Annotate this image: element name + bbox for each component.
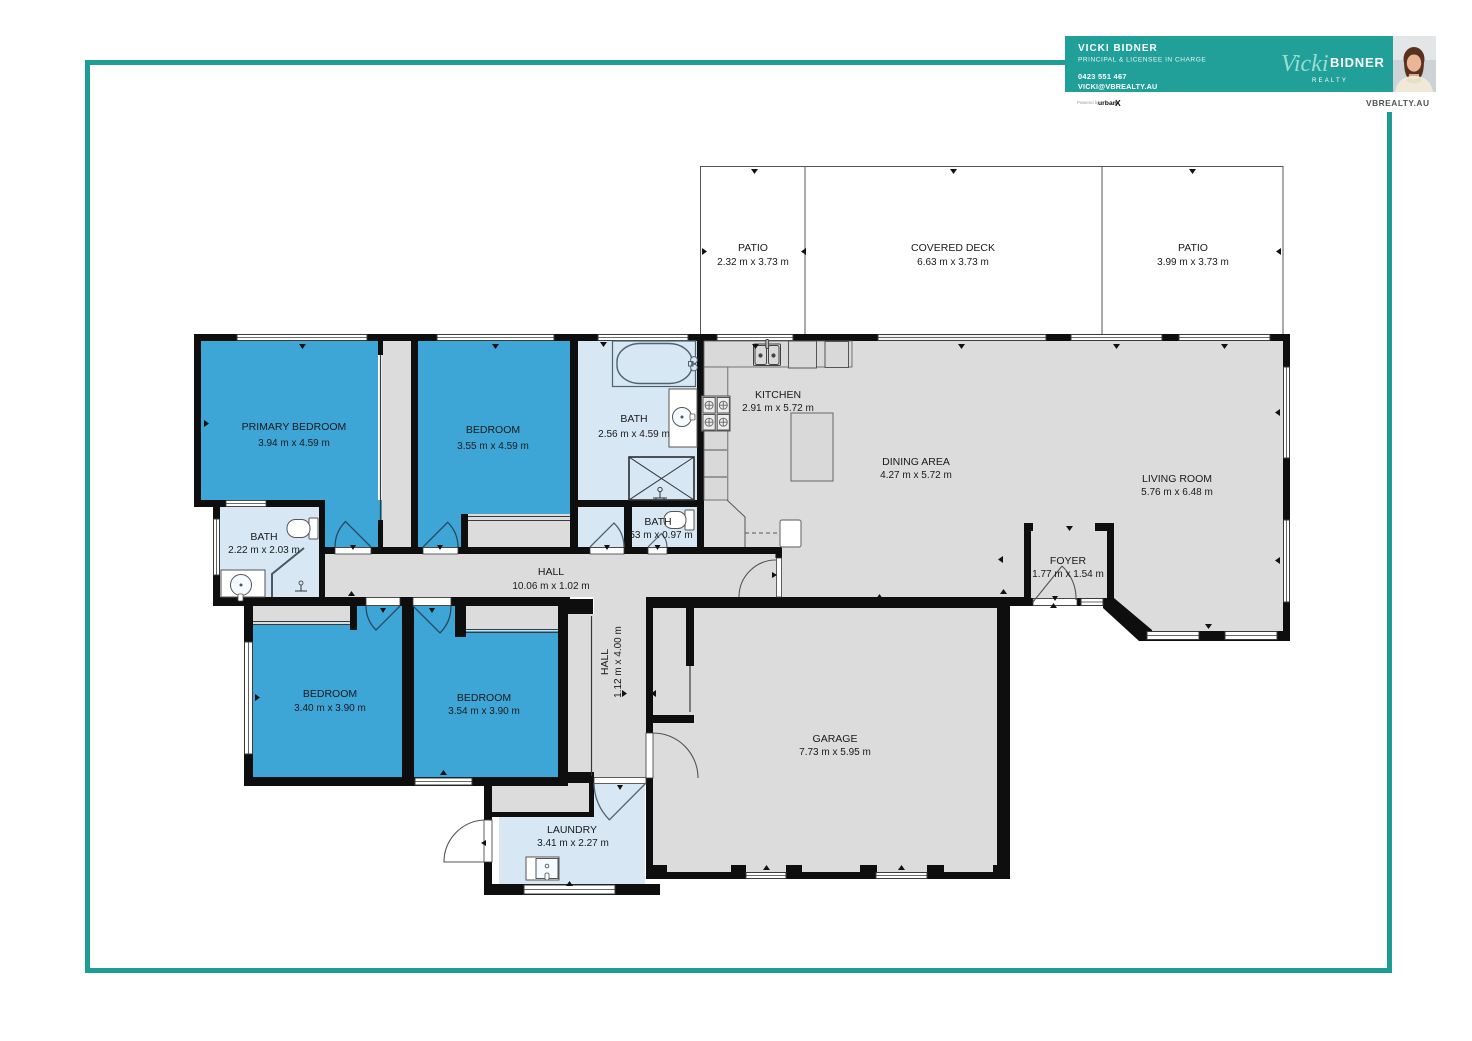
svg-text:PATIO: PATIO <box>738 242 768 254</box>
svg-text:2.56 m x 4.59 m: 2.56 m x 4.59 m <box>598 429 670 440</box>
svg-text:VBREALTY.AU: VBREALTY.AU <box>1366 98 1430 108</box>
svg-text:BATH: BATH <box>620 413 647 425</box>
svg-text:1.12 m x 4.00 m: 1.12 m x 4.00 m <box>613 626 624 698</box>
svg-text:Powered by: Powered by <box>1077 100 1100 105</box>
svg-text:REALTY: REALTY <box>1312 78 1348 84</box>
svg-text:4.27 m x 5.72 m: 4.27 m x 5.72 m <box>880 470 952 481</box>
svg-text:X: X <box>1115 98 1121 108</box>
svg-text:1.77 m x 1.54 m: 1.77 m x 1.54 m <box>1032 569 1104 580</box>
svg-text:PATIO: PATIO <box>1178 242 1208 254</box>
svg-text:Vicki: Vicki <box>1281 51 1329 77</box>
svg-text:3.41 m x 2.27 m: 3.41 m x 2.27 m <box>537 838 609 849</box>
svg-text:HALL: HALL <box>599 649 611 675</box>
svg-text:6.63 m x 3.73 m: 6.63 m x 3.73 m <box>917 257 989 268</box>
svg-text:3.94 m x 4.59 m: 3.94 m x 4.59 m <box>258 438 330 449</box>
svg-text:GARAGE: GARAGE <box>813 733 858 745</box>
svg-text:BEDROOM: BEDROOM <box>457 692 511 704</box>
svg-text:3.40 m x 3.90 m: 3.40 m x 3.90 m <box>294 703 366 714</box>
svg-text:VICKI@VBREALTY.AU: VICKI@VBREALTY.AU <box>1078 82 1157 91</box>
svg-text:PRIMARY BEDROOM: PRIMARY BEDROOM <box>242 421 347 433</box>
svg-text:3.99 m x 3.73 m: 3.99 m x 3.73 m <box>1157 257 1229 268</box>
svg-text:BEDROOM: BEDROOM <box>303 688 357 700</box>
svg-text:0423 551 467: 0423 551 467 <box>1078 72 1127 81</box>
svg-text:3.55 m x 4.59 m: 3.55 m x 4.59 m <box>457 441 529 452</box>
svg-text:PRINCIPAL & LICENSEE IN CHARGE: PRINCIPAL & LICENSEE IN CHARGE <box>1078 57 1206 64</box>
svg-text:LIVING ROOM: LIVING ROOM <box>1142 473 1212 485</box>
svg-text:BEDROOM: BEDROOM <box>466 424 520 436</box>
svg-text:FOYER: FOYER <box>1050 555 1087 567</box>
svg-text:2.22 m x 2.03 m: 2.22 m x 2.03 m <box>228 545 300 556</box>
svg-text:KITCHEN: KITCHEN <box>755 389 801 401</box>
svg-text:10.06 m x 1.02 m: 10.06 m x 1.02 m <box>512 581 589 592</box>
svg-text:2.91 m x 5.72 m: 2.91 m x 5.72 m <box>742 403 814 414</box>
svg-text:DINING AREA: DINING AREA <box>882 456 950 468</box>
svg-text:COVERED DECK: COVERED DECK <box>911 242 995 254</box>
svg-text:5.76 m x 6.48 m: 5.76 m x 6.48 m <box>1141 487 1213 498</box>
svg-text:7.73 m x 5.95 m: 7.73 m x 5.95 m <box>799 747 871 758</box>
svg-text:LAUNDRY: LAUNDRY <box>547 824 597 836</box>
svg-text:BATH: BATH <box>250 531 277 543</box>
svg-text:3.54 m x 3.90 m: 3.54 m x 3.90 m <box>448 706 520 717</box>
svg-text:BATH: BATH <box>644 516 671 528</box>
svg-text:HALL: HALL <box>538 566 564 578</box>
svg-text:BIDNER: BIDNER <box>1330 55 1385 70</box>
svg-text:53 m x 0.97 m: 53 m x 0.97 m <box>629 530 692 541</box>
svg-text:VICKI BIDNER: VICKI BIDNER <box>1078 43 1158 54</box>
svg-text:2.32 m x 3.73 m: 2.32 m x 3.73 m <box>717 257 789 268</box>
